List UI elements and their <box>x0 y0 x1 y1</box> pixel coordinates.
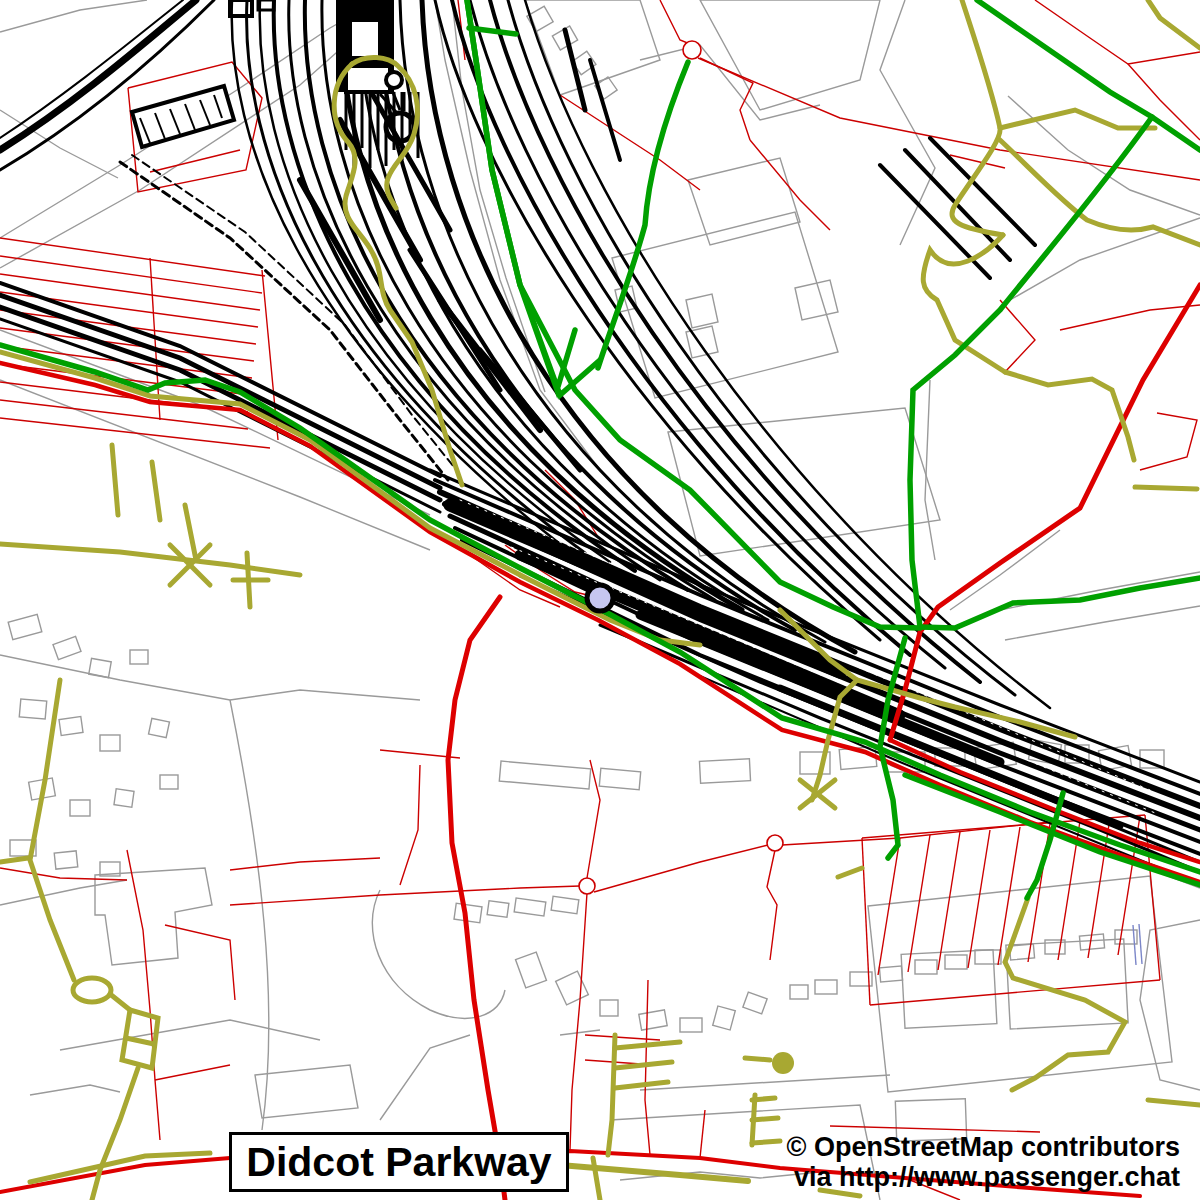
map-title-text: Didcot Parkway <box>246 1139 551 1186</box>
major-red-roads-layer <box>0 285 1200 1200</box>
map-viewport[interactable]: Didcot Parkway © OpenStreetMap contribut… <box>0 0 1200 1200</box>
attribution-line1: © OpenStreetMap contributors <box>787 1132 1180 1162</box>
attribution-line2[interactable]: via http://www.passenger.chat <box>787 1162 1180 1192</box>
map-canvas[interactable] <box>0 0 1200 1200</box>
map-title-label: Didcot Parkway <box>229 1132 569 1192</box>
station-marker[interactable] <box>587 585 613 611</box>
map-attribution: © OpenStreetMap contributors via http://… <box>787 1132 1180 1192</box>
